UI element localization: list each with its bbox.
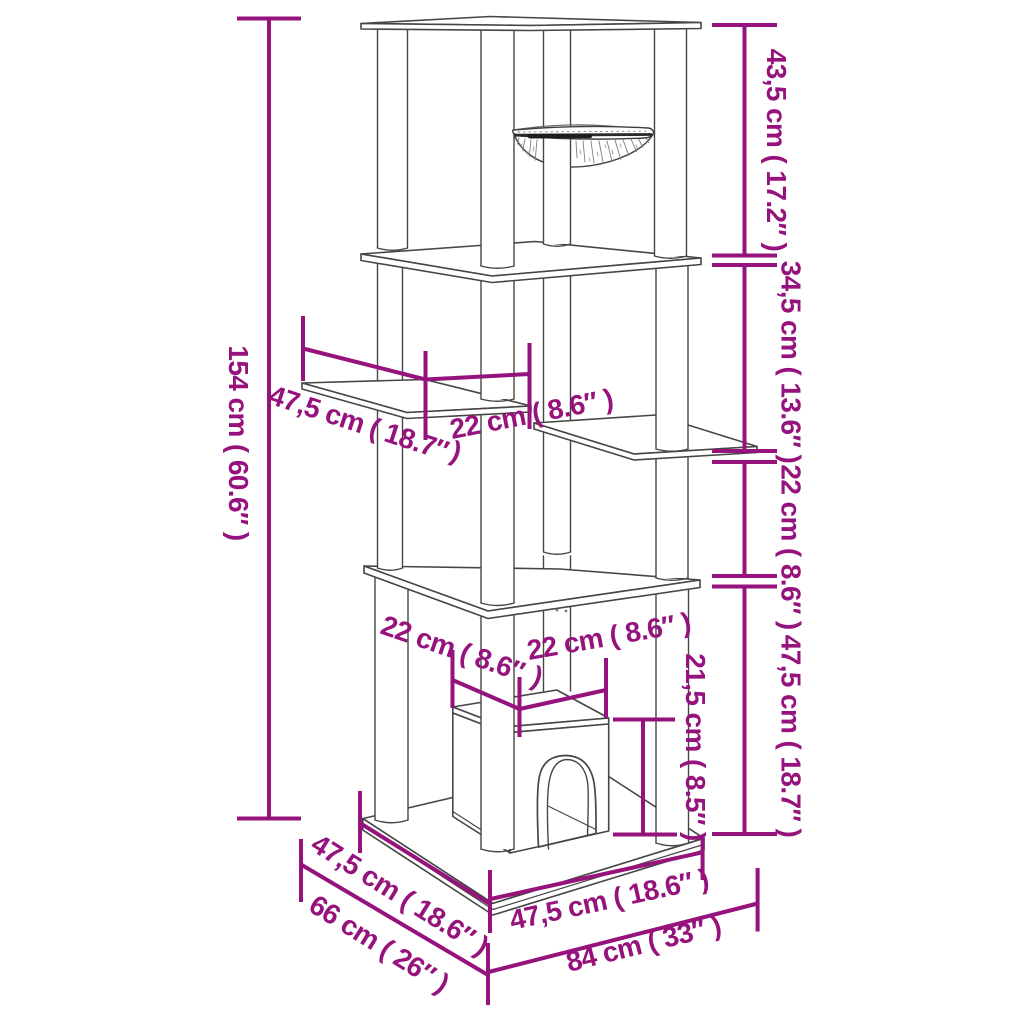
svg-text:21,5 cm ( 8.5″ ): 21,5 cm ( 8.5″ ): [680, 653, 711, 840]
svg-text:47,5 cm ( 18.7″ ): 47,5 cm ( 18.7″ ): [776, 635, 807, 837]
svg-text:34,5 cm ( 13.6″ ): 34,5 cm ( 13.6″ ): [776, 261, 807, 463]
svg-text:154 cm ( 60.6″ ): 154 cm ( 60.6″ ): [223, 345, 254, 540]
svg-text:22 cm ( 8.6″ ): 22 cm ( 8.6″ ): [776, 464, 807, 629]
svg-text:43,5 cm ( 17.2″ ): 43,5 cm ( 17.2″ ): [761, 49, 792, 251]
